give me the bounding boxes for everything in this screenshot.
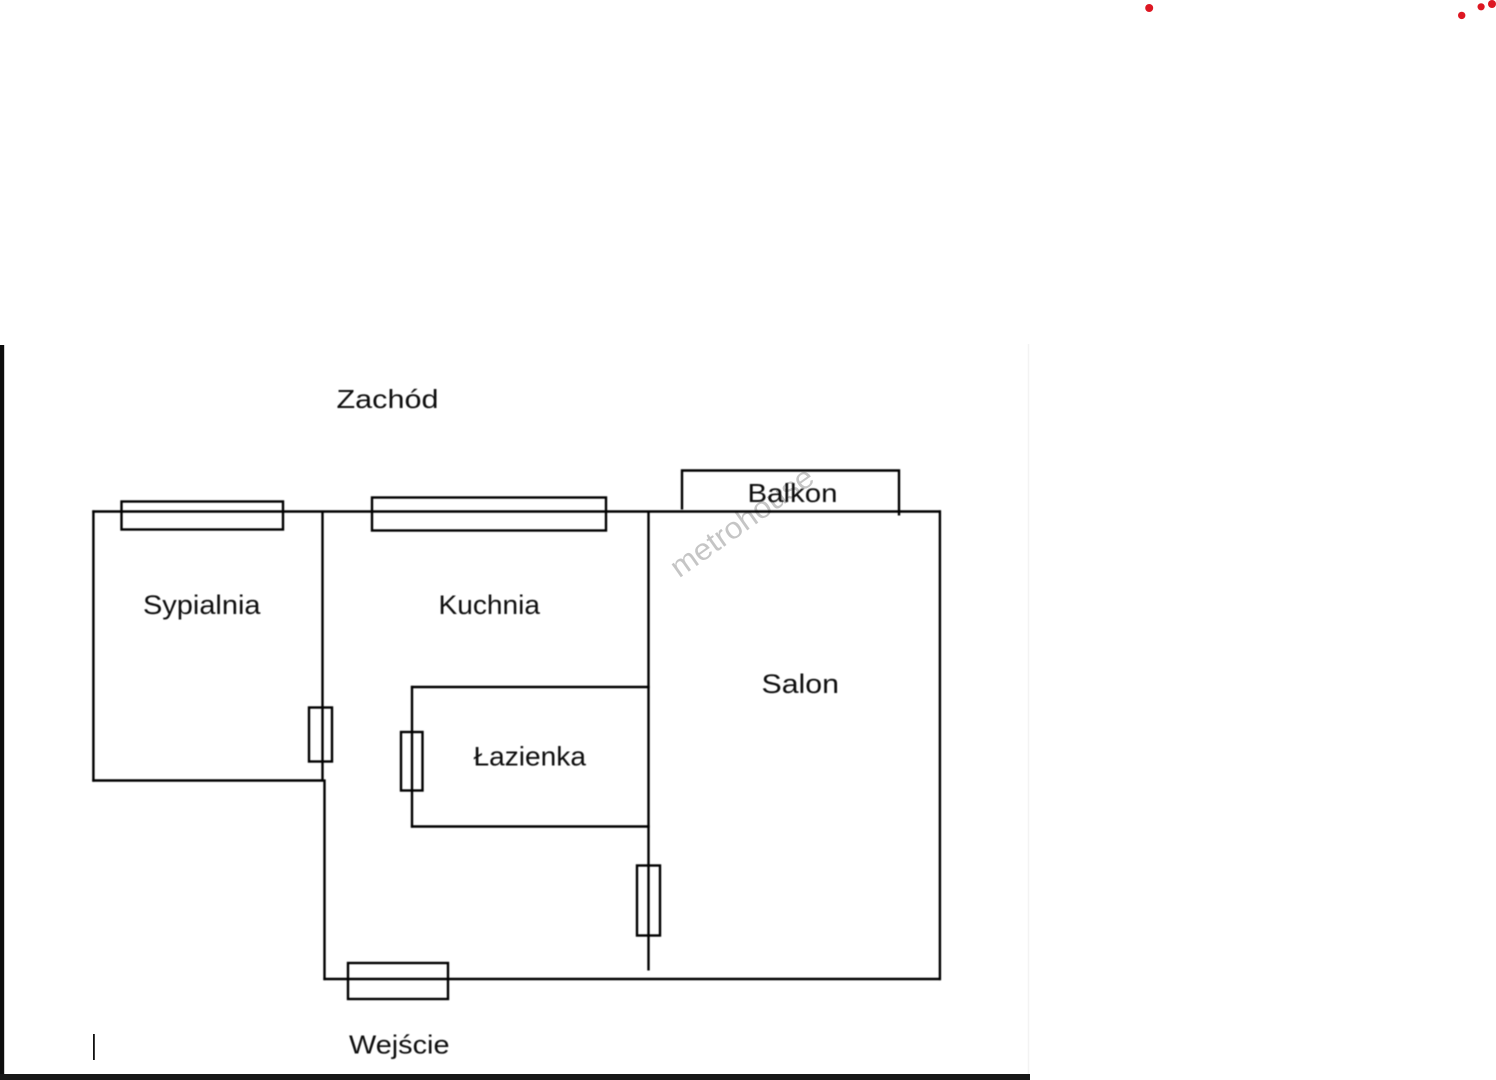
svg-text:Zachód: Zachód [337,384,439,414]
svg-text:Kuchnia: Kuchnia [439,590,542,620]
svg-text:Wejście: Wejście [349,1029,450,1059]
svg-text:Salon: Salon [762,669,840,699]
svg-text:Sypialnia: Sypialnia [143,590,262,620]
svg-text:Balkon: Balkon [748,478,838,508]
svg-text:Łazienka: Łazienka [474,742,588,772]
